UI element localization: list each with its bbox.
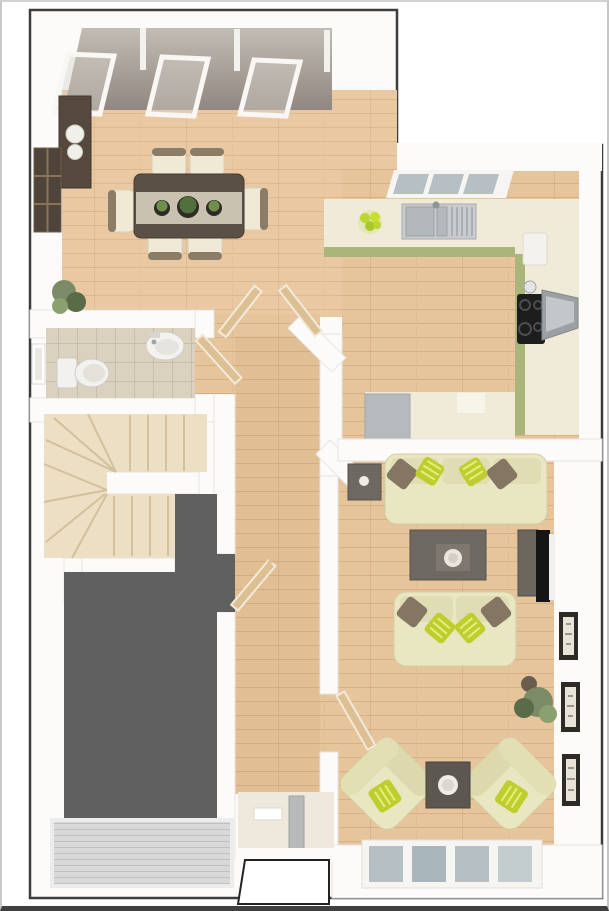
wc-wall-window-inner — [35, 348, 42, 380]
cabinet-front-right-run — [515, 254, 525, 435]
decor-bowl — [66, 125, 84, 143]
three-seat-sofa — [385, 454, 547, 524]
roof-beam — [140, 28, 146, 70]
coffee-table — [410, 530, 486, 580]
roof-beam — [324, 30, 330, 72]
wall-bath-right-upper — [195, 310, 214, 338]
two-seat-sofa — [394, 592, 516, 666]
table-plant — [180, 197, 197, 214]
wall-hall-left-a — [214, 394, 235, 554]
table-plant — [157, 201, 168, 212]
tap — [433, 202, 440, 209]
toilet — [57, 358, 109, 388]
stairs-bottom-band — [82, 558, 175, 574]
kitchen-top-wall — [397, 143, 602, 171]
tv-back-panel — [549, 534, 555, 600]
hallway-floor-tint — [235, 336, 320, 794]
counter-white-box — [523, 233, 547, 265]
wall-picture — [559, 612, 578, 660]
washing-machine — [365, 394, 410, 439]
floorplan-page — [0, 0, 609, 911]
hob — [517, 294, 545, 344]
side-table — [348, 464, 381, 500]
porch-slab — [238, 860, 329, 904]
front-door-open — [289, 796, 304, 850]
kitchen-window-pane — [463, 174, 499, 194]
decor-bowl — [68, 145, 83, 160]
living-door-threshold — [320, 694, 338, 752]
living-window — [362, 840, 542, 888]
fruit-bowl — [358, 210, 382, 234]
door-handle — [268, 560, 272, 564]
dining-table — [134, 174, 244, 238]
window-pane — [412, 846, 446, 882]
wall-picture — [562, 754, 580, 806]
table-plant — [209, 201, 220, 212]
stair-carpet-top — [44, 414, 207, 472]
kettle — [524, 281, 536, 293]
sink-half-bowl — [437, 207, 447, 236]
side-table — [426, 762, 470, 808]
front-doormat — [254, 808, 282, 820]
kitchen-window-pane — [428, 174, 464, 194]
tv-unit — [518, 530, 555, 602]
window-pane — [498, 846, 532, 882]
garage-floor-main — [64, 572, 217, 820]
roof-beam — [234, 29, 240, 71]
entrance — [238, 792, 334, 904]
tv-cabinet — [518, 530, 538, 596]
sink-with-drainer — [402, 202, 476, 240]
stair-carpet-left — [44, 472, 107, 558]
counter-light-block — [457, 393, 485, 413]
sink-bowl — [406, 207, 434, 236]
grid-wall-art — [34, 148, 61, 232]
window-pane — [455, 846, 489, 882]
dining-chair — [108, 190, 136, 232]
wall-picture — [561, 682, 580, 732]
wall-hall-right-mid — [320, 476, 338, 694]
window-pane — [369, 846, 403, 882]
kitchen-window-pane — [393, 174, 429, 194]
corner-basin — [146, 332, 184, 360]
tv-screen — [536, 530, 550, 602]
stair-carpet-lower — [107, 494, 175, 558]
porch-floor — [238, 792, 334, 852]
floorplan-render — [2, 2, 607, 906]
cabinet-front-top-run — [324, 247, 515, 257]
garage-door — [52, 820, 232, 886]
